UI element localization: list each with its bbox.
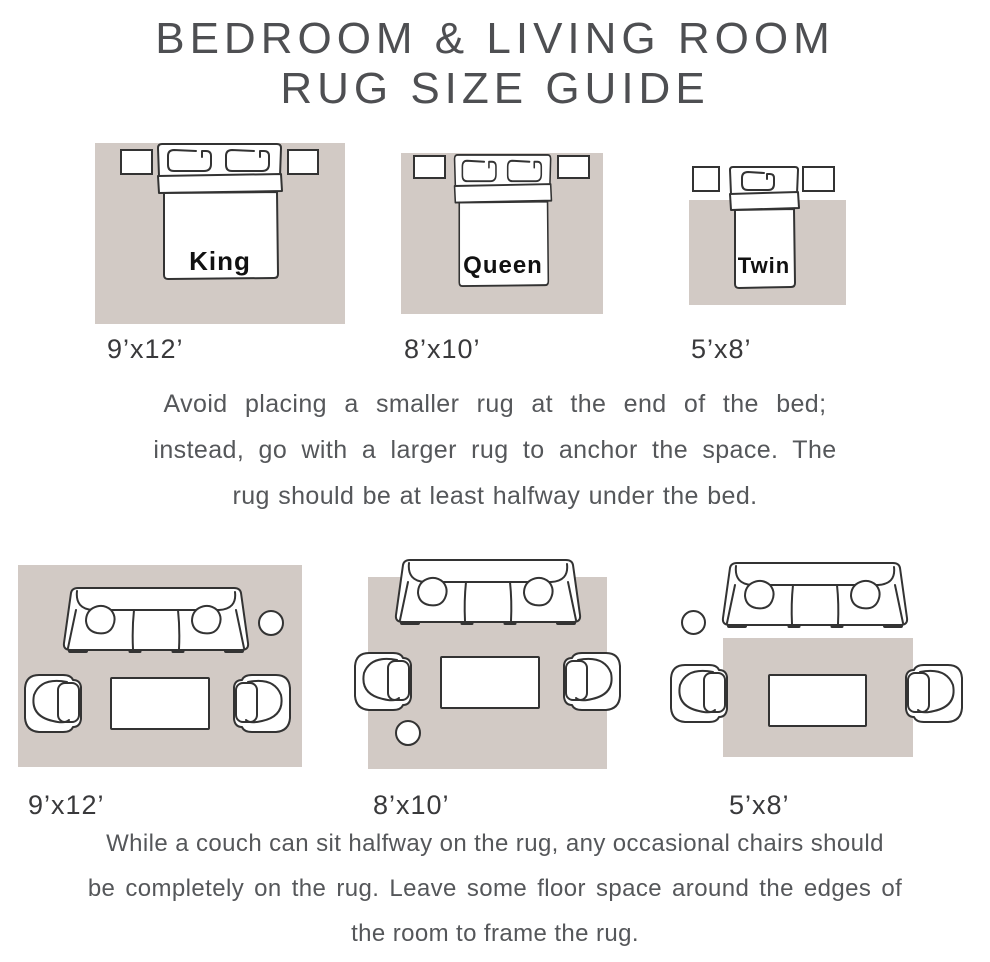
living-note: While a couch can sit halfway on the rug… — [0, 821, 990, 956]
armchair-icon — [668, 663, 734, 725]
side-table-icon — [395, 720, 421, 746]
rug-size-label: 8’x10’ — [404, 334, 481, 365]
living-note-line-2: be completely on the rug. Leave some flo… — [0, 866, 990, 911]
sofa-icon — [394, 557, 582, 627]
armchair-icon — [352, 651, 418, 713]
bedroom-note-line-1: Avoid placing a smaller rug at the end o… — [0, 381, 990, 427]
rug-size-label: 5’x8’ — [729, 790, 790, 821]
nightstand-icon — [287, 149, 319, 175]
living-note-line-1: While a couch can sit halfway on the rug… — [0, 821, 990, 866]
bedroom-note: Avoid placing a smaller rug at the end o… — [0, 381, 990, 519]
rug-size-label: 9’x12’ — [28, 790, 105, 821]
sofa-icon — [721, 560, 909, 630]
coffee-table-icon — [768, 674, 867, 727]
bed-size-label: Twin — [728, 253, 800, 279]
side-table-icon — [681, 610, 706, 635]
armchair-icon — [22, 673, 88, 735]
side-table-icon — [258, 610, 284, 636]
armchair-icon — [899, 663, 965, 725]
nightstand-icon — [557, 155, 590, 179]
rug-size-label: 8’x10’ — [373, 790, 450, 821]
rug-size-label: 9’x12’ — [107, 334, 184, 365]
coffee-table-icon — [440, 656, 540, 709]
nightstand-icon — [692, 166, 720, 192]
sofa-icon — [62, 585, 250, 655]
page-title: BEDROOM & LIVING ROOM RUG SIZE GUIDE — [0, 14, 990, 114]
bedroom-note-line-2: instead, go with a larger rug to anchor … — [0, 427, 990, 473]
armchair-icon — [557, 651, 623, 713]
coffee-table-icon — [110, 677, 210, 730]
rug-size-guide-page: BEDROOM & LIVING ROOM RUG SIZE GUIDE Kin… — [0, 0, 990, 962]
bed-size-label: Queen — [453, 252, 553, 280]
title-line-2: RUG SIZE GUIDE — [0, 64, 990, 114]
bed-size-label: King — [156, 246, 284, 277]
nightstand-icon — [802, 166, 835, 192]
nightstand-icon — [120, 149, 153, 175]
title-line-1: BEDROOM & LIVING ROOM — [0, 14, 990, 64]
nightstand-icon — [413, 155, 446, 179]
bedroom-note-line-3: rug should be at least halfway under the… — [0, 473, 990, 519]
rug-size-label: 5’x8’ — [691, 334, 752, 365]
living-note-line-3: the room to frame the rug. — [0, 911, 990, 956]
armchair-icon — [227, 673, 293, 735]
